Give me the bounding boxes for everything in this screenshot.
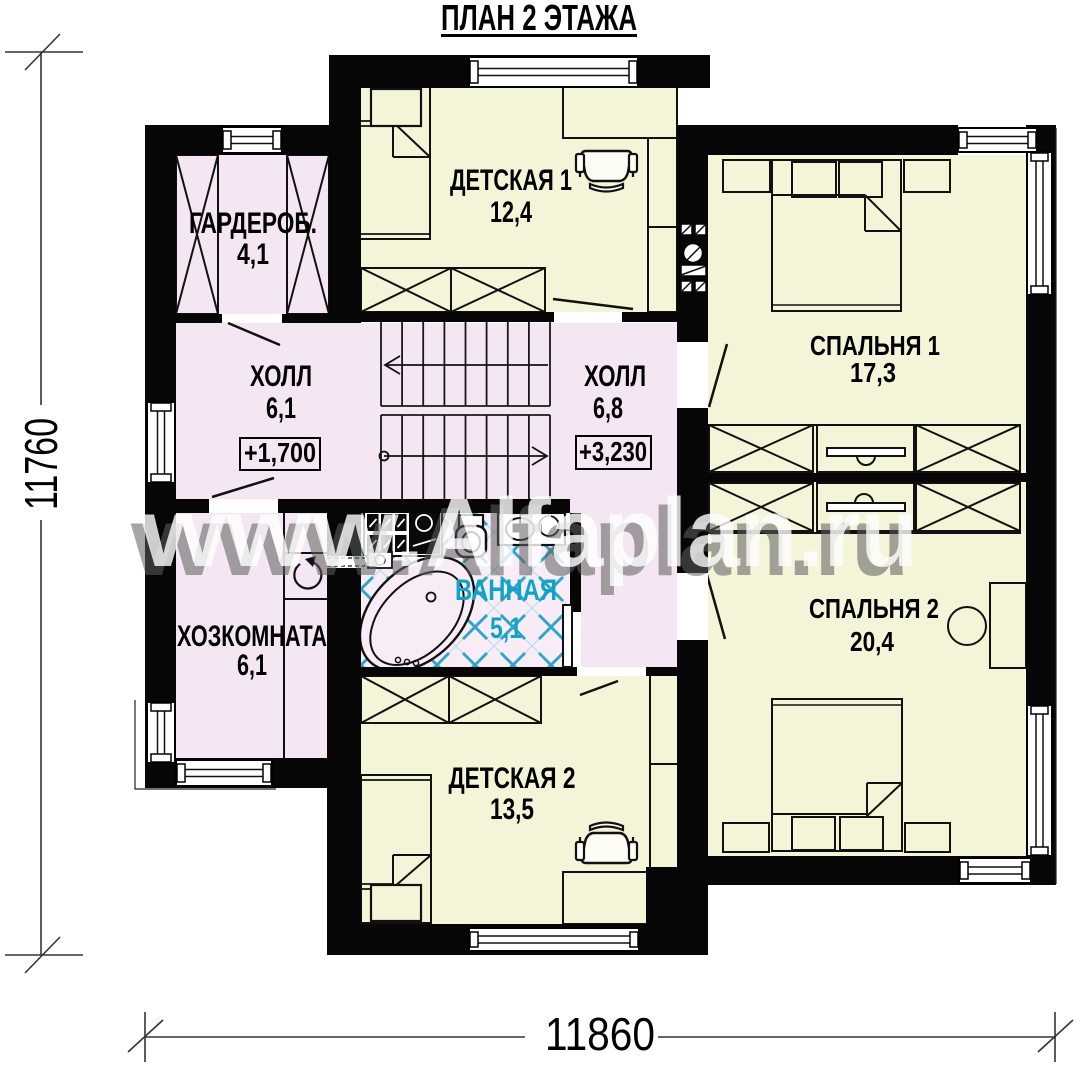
svg-text:13,5: 13,5 (490, 793, 534, 826)
svg-text:ХОЛЛ: ХОЛЛ (250, 360, 312, 393)
svg-text:+3,230: +3,230 (579, 436, 647, 467)
svg-text:+1,700: +1,700 (244, 437, 316, 468)
svg-text:ПЛАН 2 ЭТАЖА: ПЛАН 2 ЭТАЖА (441, 0, 637, 38)
svg-text:www.: www. (139, 478, 425, 587)
svg-text:12,4: 12,4 (490, 196, 532, 229)
svg-text:ДЕТСКАЯ 1: ДЕТСКАЯ 1 (450, 164, 572, 197)
svg-text:ХОЛЛ: ХОЛЛ (584, 360, 646, 393)
svg-text:Alfaplan.ru: Alfaplan.ru (425, 478, 918, 587)
svg-text:6,1: 6,1 (266, 392, 296, 425)
svg-text:6,1: 6,1 (237, 649, 267, 682)
svg-text:ГАРДЕРОБ.: ГАРДЕРОБ. (189, 207, 317, 240)
svg-text:ДЕТСКАЯ 2: ДЕТСКАЯ 2 (449, 762, 576, 795)
svg-text:5,1: 5,1 (490, 612, 522, 645)
svg-text:6,8: 6,8 (593, 392, 623, 425)
svg-text:СПАЛЬНЯ 2: СПАЛЬНЯ 2 (809, 593, 939, 624)
svg-text:11760: 11760 (15, 418, 67, 510)
svg-text:11860: 11860 (545, 1008, 655, 1060)
svg-text:4,1: 4,1 (237, 238, 269, 271)
svg-text:20,4: 20,4 (850, 626, 894, 657)
svg-text:17,3: 17,3 (850, 357, 896, 388)
